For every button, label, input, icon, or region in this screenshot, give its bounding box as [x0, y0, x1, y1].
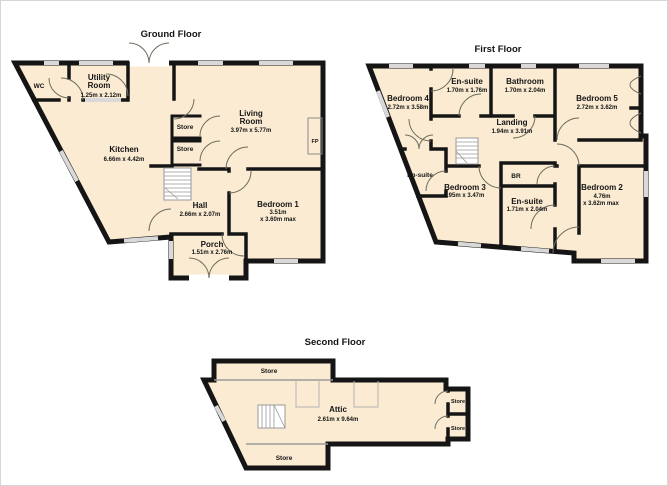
kitchen-label: Kitchen: [109, 145, 138, 154]
bedroom1-label: Bedroom 1: [257, 200, 299, 209]
floorplan-svg: Ground Floor WC Utility Room 1.25m x 2.1…: [1, 1, 668, 486]
porch-dims: 1.51m x 2.76m: [192, 250, 233, 256]
ensuite-left-label: En-suite: [407, 172, 433, 179]
store-top-label: Store: [261, 368, 278, 375]
second-floor-plan: Second Floor Store Attic 2.61m x 9.64m S…: [204, 337, 468, 468]
bedroom4-label: Bedroom 4: [387, 94, 429, 103]
hall-dims: 2.66m x 2.07m: [180, 212, 221, 218]
bedroom3-dims: 2.95m x 3.47m: [444, 193, 485, 199]
utility-dims: 1.25m x 2.12m: [81, 93, 122, 99]
store2-label: Store: [177, 146, 194, 153]
bedroom2-dims-line1: 4.76m: [593, 194, 610, 200]
br-label: BR: [511, 173, 521, 180]
first-floor-plan: First Floor Bedroom 4 2.72m x 3.58m En-s…: [369, 44, 646, 261]
second-floor-footprint: [204, 361, 468, 468]
bedroom2-dims-line2: x 3.62m max: [583, 201, 619, 207]
ensuite-top-dims: 1.70m x 1.76m: [447, 88, 488, 94]
bedroom4-dims: 2.72m x 3.58m: [388, 105, 429, 111]
store-right2-label: Store: [451, 426, 465, 432]
attic-dims: 2.61m x 9.64m: [318, 417, 359, 423]
bathroom-label: Bathroom: [506, 77, 544, 86]
bedroom5-dims: 2.72m x 3.62m: [577, 105, 618, 111]
living-room-label-line2: Room: [240, 117, 263, 126]
attic-label: Attic: [329, 405, 347, 414]
ground-staircase: [164, 168, 191, 200]
kitchen-dims: 6.66m x 4.42m: [104, 157, 145, 163]
ensuite-mid-label: En-suite: [511, 197, 543, 206]
floorplan-canvas: Ground Floor WC Utility Room 1.25m x 2.1…: [0, 0, 668, 486]
ensuite-top-label: En-suite: [451, 77, 483, 86]
utility-label-line2: Room: [88, 81, 111, 90]
second-floor-title: Second Floor: [305, 337, 366, 348]
bedroom3-label: Bedroom 3: [444, 183, 486, 192]
first-staircase: [456, 138, 478, 164]
fireplace-label: FP: [311, 139, 318, 145]
bedroom1-dims-line2: x 3.60m max: [260, 217, 296, 223]
bedroom1-dims-line1: 3.51m: [269, 210, 286, 216]
first-floor-title: First Floor: [475, 44, 522, 55]
bathroom-dims: 1.70m x 2.04m: [505, 88, 546, 94]
ground-floor-title: Ground Floor: [141, 29, 202, 40]
living-room-dims: 3.97m x 5.77m: [231, 128, 272, 134]
attic-staircase: [258, 405, 285, 428]
ensuite-mid-dims: 1.71m x 2.04m: [507, 207, 548, 213]
store-bottom-label: Store: [276, 455, 293, 462]
wc-label: WC: [34, 83, 45, 90]
bedroom2-label: Bedroom 2: [581, 183, 623, 192]
store1-label: Store: [177, 124, 194, 131]
store-right1-label: Store: [451, 399, 465, 405]
landing-dims: 1.94m x 3.91m: [492, 129, 533, 135]
porch-label: Porch: [201, 240, 224, 249]
hall-label: Hall: [193, 201, 208, 210]
bedroom5-label: Bedroom 5: [576, 94, 618, 103]
ground-floor-plan: Ground Floor WC Utility Room 1.25m x 2.1…: [15, 29, 323, 278]
landing-label: Landing: [496, 118, 527, 127]
